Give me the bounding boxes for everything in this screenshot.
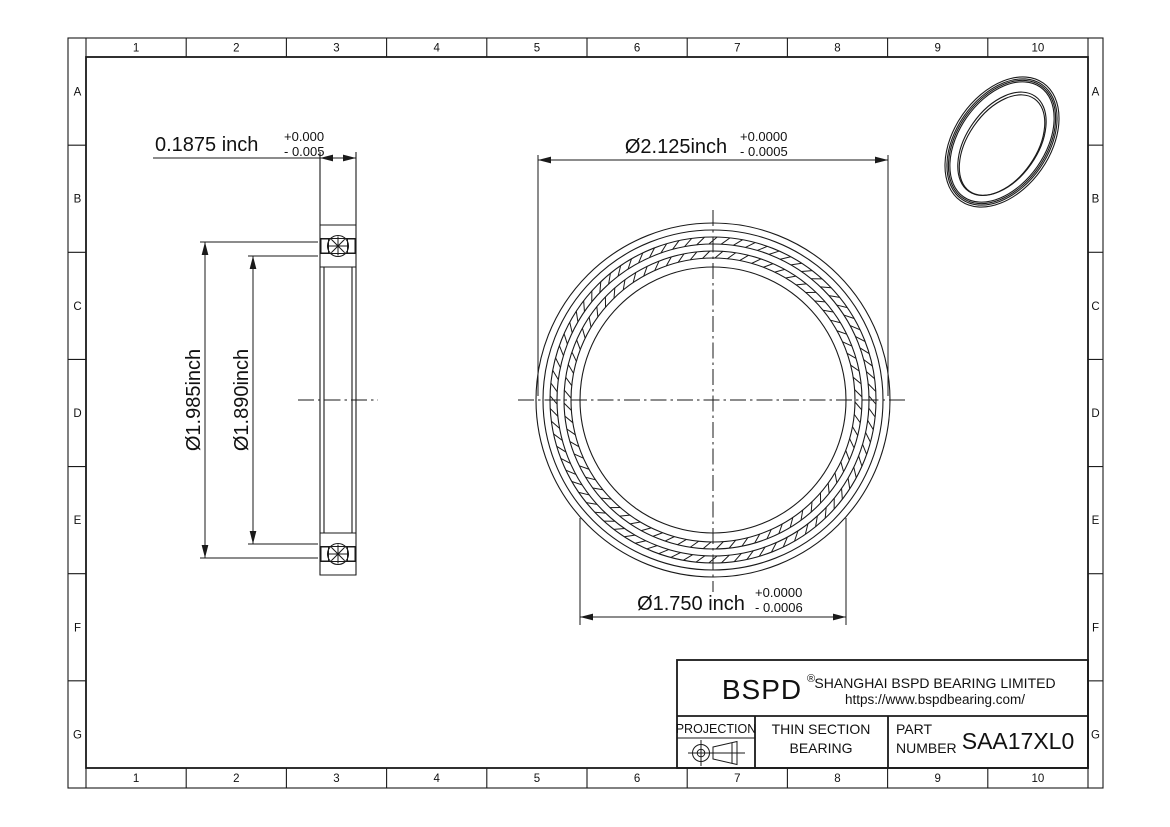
part-number-label-line2: NUMBER xyxy=(896,740,957,756)
outer-race-dim-value: Ø1.985inch xyxy=(183,349,205,451)
outer-dia-tol-plus: +0.0000 xyxy=(740,129,787,144)
grid-row-label: D xyxy=(73,408,81,420)
grid-row-label: A xyxy=(1092,87,1100,99)
grid-column-label: 2 xyxy=(233,773,239,785)
grid-column-label: 6 xyxy=(634,43,640,55)
grid-row-label: D xyxy=(1091,408,1099,420)
grid-row-label: A xyxy=(74,87,82,99)
grid-column-label: 5 xyxy=(534,43,540,55)
grid-column-label: 7 xyxy=(734,773,740,785)
grid-column-label: 4 xyxy=(433,773,440,785)
grid-row-label: B xyxy=(74,194,82,206)
grid-column-label: 10 xyxy=(1032,43,1045,55)
company-website: https://www.bspdbearing.com/ xyxy=(845,692,1025,707)
grid-column-label: 8 xyxy=(834,773,840,785)
product-type-line1: THIN SECTION xyxy=(772,721,871,737)
width-dim-value: 0.1875 inch xyxy=(155,134,258,156)
grid-column-label: 7 xyxy=(734,43,740,55)
grid-column-label: 3 xyxy=(333,43,339,55)
ball-top-star xyxy=(329,237,348,256)
company-name: SHANGHAI BSPD BEARING LIMITED xyxy=(814,675,1055,691)
grid-column-label: 1 xyxy=(133,773,139,785)
grid-row-label: G xyxy=(1091,729,1100,741)
outer-dia-value: Ø2.125inch xyxy=(625,136,727,158)
grid-column-label: 6 xyxy=(634,773,640,785)
ball-bottom-star xyxy=(329,545,348,564)
product-type-line2: BEARING xyxy=(789,740,852,756)
grid-column-label: 9 xyxy=(934,773,940,785)
section-bottom-ball-pocket xyxy=(320,533,356,575)
outer-dia-tol-minus: - 0.0005 xyxy=(740,144,788,159)
title-block: BSPD ® SHANGHAI BSPD BEARING LIMITED htt… xyxy=(676,660,1088,768)
projection-label: PROJECTION xyxy=(676,722,757,736)
grid-row-label: C xyxy=(73,301,81,313)
grid-row-label: F xyxy=(74,622,81,634)
bearing-section-view: 0.1875 inch +0.000 - 0.005 Ø1.985inch Ø1… xyxy=(153,129,378,575)
grid-column-label: 4 xyxy=(433,43,440,55)
grid-column-label: 9 xyxy=(934,43,940,55)
width-dim-tol-minus: - 0.005 xyxy=(284,144,324,159)
grid-row-label: E xyxy=(74,515,82,527)
grid-column-label: 3 xyxy=(333,773,339,785)
part-number-label-line1: PART xyxy=(896,721,932,737)
bore-dia-tol-plus: +0.0000 xyxy=(755,585,802,600)
grid-row-label: F xyxy=(1092,622,1099,634)
bore-dia-value: Ø1.750 inch xyxy=(637,593,745,615)
width-dimension: 0.1875 inch +0.000 - 0.005 xyxy=(153,129,356,159)
projection-symbol-icon xyxy=(688,740,745,766)
grid-column-label: 10 xyxy=(1032,773,1045,785)
engineering-drawing-canvas: 1122334455667788991010AABBCCDDEEFFGG xyxy=(0,0,1170,827)
grid-row-label: C xyxy=(1091,301,1099,313)
grid-column-label: 5 xyxy=(534,773,540,785)
part-number-value: SAA17XL0 xyxy=(962,728,1075,754)
company-logo: BSPD xyxy=(722,674,802,705)
section-top-ball-pocket xyxy=(320,225,356,267)
inner-race-dim-value: Ø1.890inch xyxy=(231,349,253,451)
grid-row-label: B xyxy=(1092,194,1100,206)
bore-dia-tol-minus: - 0.0006 xyxy=(755,600,803,615)
bearing-isometric-view xyxy=(921,55,1082,228)
grid-column-label: 8 xyxy=(834,43,840,55)
bearing-front-view: Ø2.125inch +0.0000 - 0.0005 Ø1.750 inch … xyxy=(518,129,908,625)
width-dim-tol-plus: +0.000 xyxy=(284,129,324,144)
grid-row-label: G xyxy=(73,729,82,741)
grid-column-label: 2 xyxy=(233,43,239,55)
grid-row-label: E xyxy=(1092,515,1100,527)
grid-column-label: 1 xyxy=(133,43,139,55)
